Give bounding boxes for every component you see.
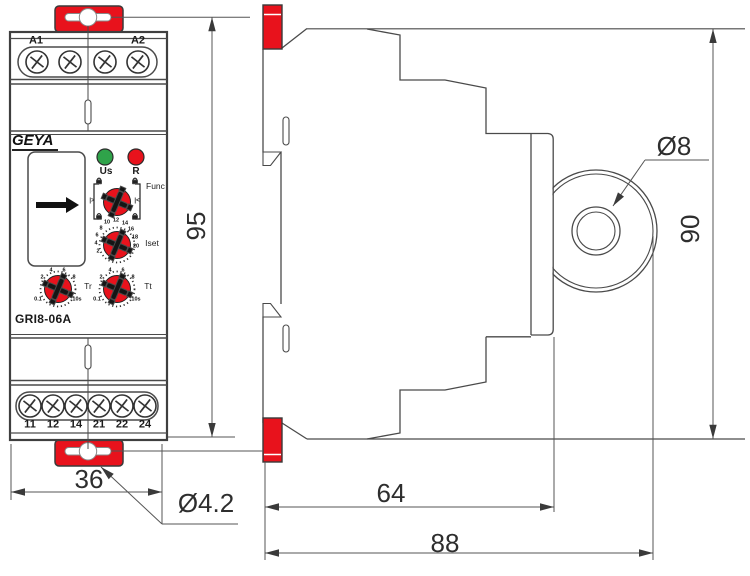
dim-height-95: 95 <box>183 212 209 241</box>
tr-scale-value: 0.1 <box>34 297 42 303</box>
screw-terminal <box>18 394 41 417</box>
side-view <box>263 5 745 462</box>
din-clip-top <box>263 152 281 166</box>
iset-scale-value: 16 <box>128 227 134 233</box>
screw-terminal <box>93 50 116 73</box>
iset-scale-value: 12 <box>113 218 119 224</box>
dim-side-hole: Ø8 <box>657 133 692 159</box>
model-number: GRI8-06A <box>15 313 71 325</box>
terminal-number: 14 <box>70 420 82 431</box>
terminal-number: 22 <box>116 420 128 431</box>
screw-terminal <box>126 50 149 73</box>
iset-knob-label: Iset <box>145 239 159 248</box>
screw-terminal <box>41 394 64 417</box>
tr-scale-value: 4 <box>49 268 52 274</box>
iset-scale-value: 8 <box>99 226 102 232</box>
tt-scale-value: 4 <box>108 268 111 274</box>
tr-scale-value: 10s <box>72 297 81 303</box>
dim-width-36: 36 <box>75 466 104 492</box>
terminal-number: 11 <box>24 420 36 431</box>
side-slot-bottom <box>283 325 289 352</box>
side-slot-top <box>283 117 289 145</box>
iset-scale-value: 2 <box>96 249 99 255</box>
iset-scale-value: 4 <box>94 241 97 247</box>
screw-terminal <box>133 394 156 417</box>
side-bottom-mounting-tab <box>263 418 282 462</box>
screw-terminal <box>58 50 81 73</box>
front-top-mounting-tab <box>55 6 123 32</box>
drawing-linework <box>0 0 750 576</box>
iset-scale-value: 18 <box>132 235 138 241</box>
front-bottom-slot <box>85 345 91 369</box>
screw-terminal <box>64 394 87 417</box>
screw-terminal <box>87 394 110 417</box>
dim-side-height-90: 90 <box>677 215 703 244</box>
func-left-mark: |> <box>89 198 94 204</box>
iset-scale-value: 10 <box>104 220 110 226</box>
tt-scale-value: 2 <box>99 275 102 281</box>
func-knob-label: Func <box>146 182 165 191</box>
dim-depth-64: 64 <box>377 480 406 506</box>
relay-led-label: R <box>132 167 139 177</box>
power-led <box>97 149 113 165</box>
front-top-slot <box>85 100 91 124</box>
terminal-number: 12 <box>47 420 59 431</box>
tr-knob-label: Tr <box>84 282 92 291</box>
front-display-window <box>28 152 85 266</box>
tt-knob-label: Tt <box>144 282 152 291</box>
front-view <box>10 6 167 466</box>
func-right-mark: |< <box>134 198 139 204</box>
tt-scale-value: 0.1 <box>93 297 101 303</box>
terminal-label-a2: A2 <box>131 36 145 47</box>
brand-logo: GEYA <box>12 133 58 151</box>
terminal-label-a1: A1 <box>29 36 43 47</box>
tt-scale-value: 6 <box>121 268 124 274</box>
screw-terminal <box>25 50 48 73</box>
terminal-number: 24 <box>139 420 151 431</box>
side-top-mounting-tab <box>263 5 282 49</box>
din-clip-bottom <box>263 304 281 318</box>
iset-scale-value: 20 <box>133 244 139 250</box>
front-bottom-mounting-tab <box>55 440 123 466</box>
terminal-number: 21 <box>93 420 105 431</box>
power-led-label: Us <box>100 167 113 177</box>
dim-depth-88: 88 <box>431 530 460 556</box>
tt-scale-value: 8 <box>131 275 134 281</box>
iset-scale-value: 6 <box>95 233 98 239</box>
tr-scale-value: 8 <box>72 275 75 281</box>
screw-terminal <box>110 394 133 417</box>
dim-front-hole: Ø4.2 <box>178 490 234 516</box>
side-lug-hole <box>572 207 620 255</box>
tr-scale-value: 6 <box>62 268 65 274</box>
relay-led <box>128 149 144 165</box>
tr-scale-value: 2 <box>40 275 43 281</box>
technical-drawing-canvas: A1 A2 GEYA Us R |> |< Func Iset 2 4 6 8 … <box>0 0 750 576</box>
tt-scale-value: 10s <box>131 297 140 303</box>
leader-front-hole <box>101 467 162 524</box>
